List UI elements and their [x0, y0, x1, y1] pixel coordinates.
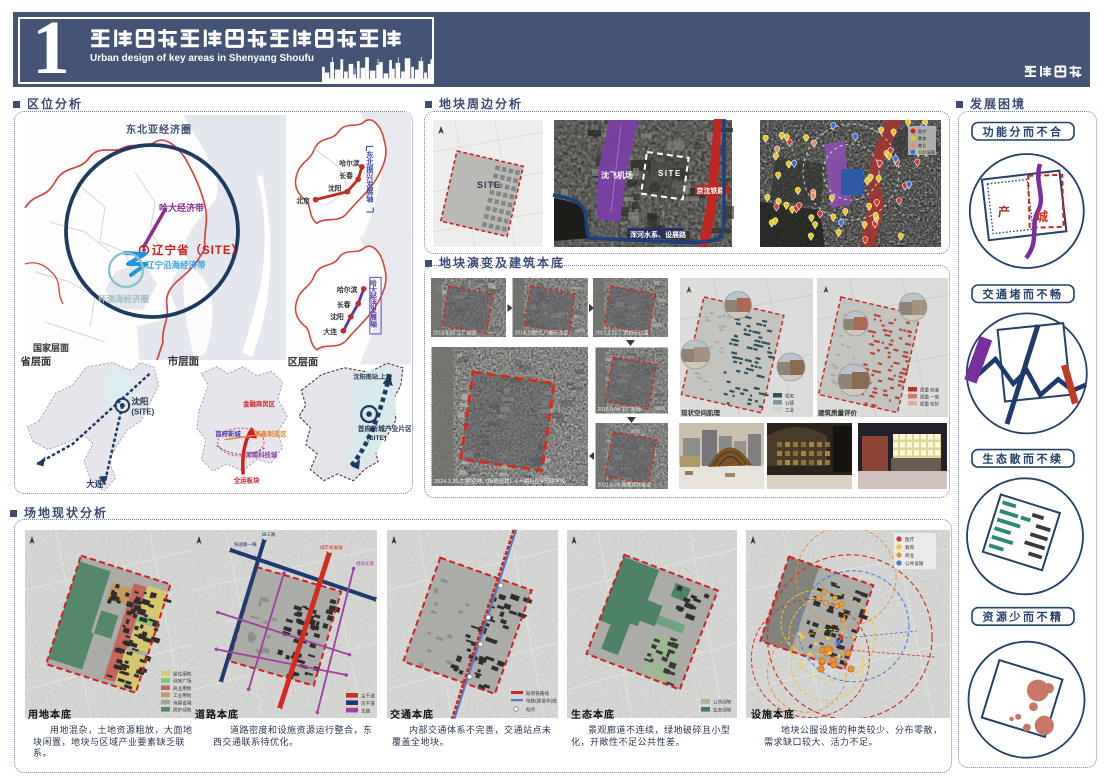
svg-text:既有铁路线: 既有铁路线: [526, 690, 549, 697]
svg-text:北京: 北京: [296, 196, 310, 205]
svg-text:辽宁省（SITE）: 辽宁省（SITE）: [152, 243, 244, 257]
svg-text:设施本底: 设施本底: [751, 708, 795, 721]
svg-text:哈尔滨: 哈尔滨: [337, 285, 358, 294]
svg-text:现状空间肌理: 现状空间肌理: [681, 408, 721, 417]
svg-text:居住用地: 居住用地: [173, 671, 192, 678]
svg-text:(SITE): (SITE): [131, 408, 154, 417]
svg-text:2013.9.02 工厂运营: 2013.9.02 工厂运营: [433, 330, 477, 337]
svg-text:功能分而不合: 功能分而不合: [983, 125, 1064, 139]
svg-text:市层面: 市层面: [168, 354, 200, 367]
svg-text:装备制造区: 装备制造区: [255, 429, 287, 438]
svg-text:SITE: SITE: [477, 180, 501, 190]
svg-text:道路本底: 道路本底: [195, 708, 239, 721]
svg-text:站点: 站点: [526, 706, 536, 713]
svg-text:首府新城: 首府新城: [215, 429, 241, 438]
svg-text:浑南科技城: 浑南科技城: [245, 450, 277, 459]
svg-text:教育: 教育: [918, 135, 926, 142]
svg-text:长春: 长春: [337, 300, 351, 309]
svg-text:生态绿地: 生态绿地: [713, 707, 732, 713]
svg-text:沈飞机场: 沈飞机场: [601, 170, 633, 180]
svg-text:质量 较差: 质量 较差: [920, 387, 940, 394]
svg-text:公共绿地: 公共绿地: [713, 699, 732, 706]
svg-text:首府新城产业片区: 首府新城产业片区: [358, 424, 411, 433]
svg-text:规划支路: 规划支路: [356, 560, 374, 567]
svg-text:全运板块: 全运板块: [233, 476, 260, 485]
svg-text:沈阳: 沈阳: [330, 312, 344, 321]
svg-text:建筑质量评价: 建筑质量评价: [817, 408, 858, 417]
svg-text:(SITE): (SITE): [367, 435, 387, 442]
svg-text:工业用地: 工业用地: [173, 692, 192, 699]
svg-text:商业用地: 商业用地: [173, 685, 192, 692]
svg-text:2021.8.24 场地现状建设: 2021.8.24 场地现状建设: [598, 482, 652, 489]
svg-text:快速路一横: 快速路一横: [234, 541, 257, 548]
svg-text:教育: 教育: [905, 544, 915, 551]
svg-text:公共设施: 公共设施: [905, 560, 924, 567]
svg-text:国家层面: 国家层面: [33, 342, 69, 353]
svg-text:东北振兴发展轴: 东北振兴发展轴: [365, 150, 374, 203]
svg-text:大连: 大连: [323, 327, 337, 336]
svg-text:东北亚经济圈: 东北亚经济圈: [126, 123, 192, 136]
svg-text:商业: 商业: [905, 552, 915, 559]
svg-text:沈阳南站,上联: 沈阳南站,上联: [353, 373, 393, 381]
svg-text:生态本底: 生态本底: [571, 708, 615, 721]
svg-text:沈阳: 沈阳: [131, 396, 148, 406]
svg-text:地铁(建设中)线: 地铁(建设中)线: [526, 698, 557, 705]
svg-text:质量 较好: 质量 较好: [920, 401, 940, 408]
svg-text:质量 一般: 质量 一般: [920, 394, 940, 401]
svg-text:2018.6.04 工厂拆除: 2018.6.04 工厂拆除: [598, 406, 642, 413]
svg-text:辽宁沿海经济带: 辽宁沿海经济带: [146, 260, 206, 270]
svg-text:京沈铁路: 京沈铁路: [697, 186, 726, 195]
svg-text:主干道: 主干道: [361, 693, 375, 700]
svg-text:支路: 支路: [361, 707, 371, 714]
svg-text:纵三路: 纵三路: [262, 531, 276, 538]
svg-text:SITE: SITE: [658, 169, 682, 178]
svg-text:生态散而不续: 生态散而不续: [983, 452, 1064, 466]
svg-text:城市发展轴: 城市发展轴: [320, 544, 343, 551]
svg-text:防护绿地: 防护绿地: [173, 707, 192, 714]
svg-text:工业: 工业: [785, 407, 794, 413]
svg-text:次干道: 次干道: [361, 700, 375, 707]
svg-text:长春: 长春: [339, 171, 353, 180]
svg-text:金融商贸区: 金融商贸区: [242, 399, 275, 408]
svg-text:浑河水系、设展路: 浑河水系、设展路: [630, 230, 687, 239]
svg-text:产: 产: [998, 204, 1010, 219]
svg-text:大连: 大连: [86, 479, 103, 489]
svg-text:哈尔滨: 哈尔滨: [339, 159, 360, 168]
svg-text:2014.7.02 工厂搬迁改造: 2014.7.02 工厂搬迁改造: [515, 330, 569, 337]
svg-text:公共设施: 公共设施: [918, 149, 936, 156]
svg-text:2024.3.25 二期空地（场地现状）+一期社区+三期学校: 2024.3.25 二期空地（场地现状）+一期社区+三期学校: [434, 477, 566, 485]
svg-text:医疗: 医疗: [918, 128, 926, 135]
svg-text:交通本底: 交通本底: [390, 708, 434, 721]
svg-text:公建: 公建: [785, 400, 794, 407]
svg-text:交通堵而不畅: 交通堵而不畅: [983, 287, 1064, 301]
svg-text:商业: 商业: [918, 142, 926, 149]
svg-text:住宅: 住宅: [785, 393, 794, 399]
svg-text:用地本底: 用地本底: [27, 708, 72, 721]
svg-text:医疗: 医疗: [905, 536, 915, 543]
svg-text:绿地广场: 绿地广场: [173, 678, 192, 685]
svg-text:2017.2.01 厂房拆迁过渡: 2017.2.01 厂房拆迁过渡: [595, 330, 649, 337]
svg-text:哈大经济带: 哈大经济带: [159, 202, 204, 213]
svg-text:城: 城: [1036, 209, 1048, 224]
svg-text:资源少而不精: 资源少而不精: [983, 610, 1064, 624]
svg-text:区层面: 区层面: [288, 357, 318, 369]
svg-text:沈阳: 沈阳: [328, 184, 342, 193]
svg-text:省层面: 省层面: [20, 355, 51, 368]
svg-text:环渤海经济圈: 环渤海经济圈: [98, 294, 149, 304]
